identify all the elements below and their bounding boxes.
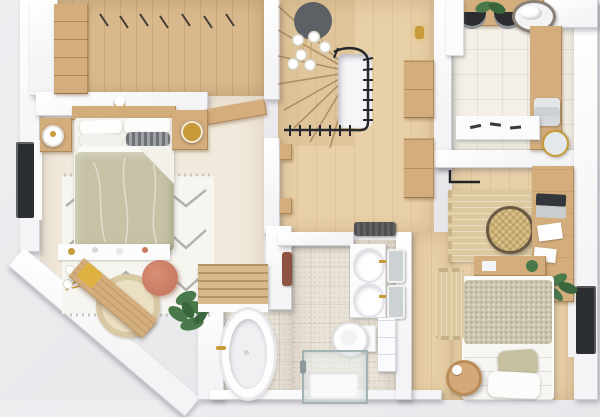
bedroom-window — [16, 142, 34, 218]
mirror — [387, 285, 405, 319]
paper — [537, 222, 563, 241]
pendant-light-cluster — [288, 0, 348, 78]
wall-shelf — [474, 256, 546, 276]
shower-handle — [300, 360, 306, 374]
floor-plan-render — [0, 0, 600, 400]
sink — [353, 248, 385, 283]
round-tray — [542, 130, 569, 157]
console-item — [510, 126, 521, 129]
sink — [353, 283, 385, 318]
slatted-bench-rim — [198, 304, 268, 312]
white-pillow — [487, 371, 540, 400]
sink-faucet — [379, 260, 386, 263]
console-item — [470, 124, 481, 129]
hall-closet-door-upper — [404, 60, 434, 118]
patterned-pillow — [126, 132, 170, 146]
mirror — [387, 249, 405, 283]
wall-sconce — [415, 26, 424, 39]
wall-hook-shelf — [280, 198, 292, 214]
cup — [452, 365, 462, 375]
laundry-plant — [474, 0, 508, 16]
hall-closet-door-lower — [404, 138, 434, 198]
shelf-box — [482, 261, 496, 271]
bedroom-window-sill — [34, 140, 42, 220]
bathroom-top-wall — [278, 232, 354, 246]
perfume-bottle — [68, 248, 75, 255]
freestanding-tub — [222, 310, 274, 398]
console-item — [490, 122, 501, 126]
slatted-bench — [198, 264, 268, 306]
tweed-blanket — [464, 280, 552, 344]
tub-faucet — [216, 346, 226, 350]
clothes-rail — [446, 168, 486, 190]
storage-cabinet — [378, 318, 396, 372]
hanging-towel — [282, 252, 292, 286]
jute-runner — [436, 268, 464, 340]
hanger-rail — [96, 10, 246, 36]
laptop-base — [536, 205, 567, 219]
wall-hook-shelf — [280, 144, 292, 160]
glass-shower — [302, 350, 368, 404]
wall-lamp-left — [42, 125, 64, 147]
laundry-console — [456, 116, 540, 140]
tall-cabinet — [446, 0, 464, 56]
rattan-chair — [486, 206, 534, 254]
wall-lamp-right — [181, 121, 203, 143]
decor-item — [142, 247, 148, 253]
pillow — [124, 118, 170, 133]
sink-faucet — [379, 295, 386, 298]
bedroom-hall-wall-lower — [264, 138, 280, 234]
wardrobe-closet — [54, 4, 88, 94]
doormat — [354, 222, 396, 236]
console-ledge — [58, 244, 170, 260]
glass-item — [92, 247, 98, 253]
shower-tray — [308, 372, 358, 398]
pillow — [80, 119, 122, 134]
side-stool — [446, 360, 482, 396]
tub-drain — [244, 350, 249, 355]
glass-item — [116, 248, 123, 255]
shelf-plant — [526, 260, 538, 272]
